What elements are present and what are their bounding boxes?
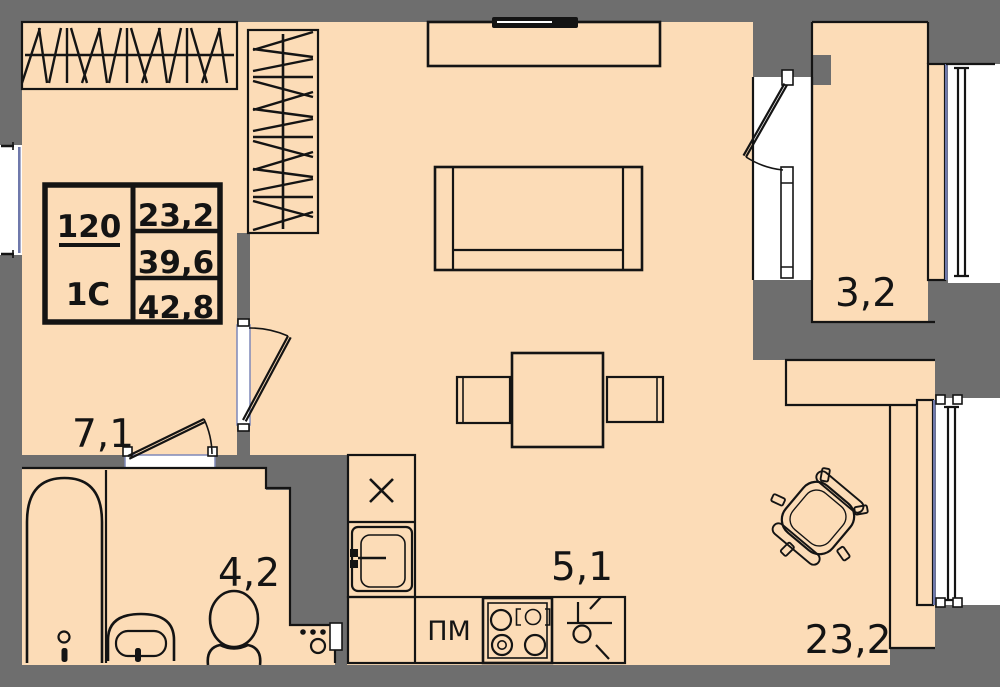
apartment-type: 1С (66, 277, 110, 313)
floor-plan: 120 1С 23,2 39,6 42,8 7,1 4,2 5,1 23,2 3… (0, 0, 1000, 687)
balcony-window (928, 64, 1000, 283)
washbasin-faucet-icon (135, 648, 141, 662)
hallway-window (0, 142, 22, 258)
apartment-number: 120 (57, 209, 122, 245)
kitchen-area-label: 5,1 (551, 545, 613, 590)
bathtub-faucet-icon (62, 648, 68, 662)
legend-area-living: 23,2 (138, 198, 215, 234)
main-apartment-floor (22, 22, 785, 665)
floor-plan-screenshot: 120 1С 23,2 39,6 42,8 7,1 4,2 5,1 23,2 3… (0, 0, 1000, 687)
balcony-partition (744, 70, 813, 280)
balcony-area-label: 3,2 (835, 271, 897, 316)
utility-hatch (330, 623, 342, 650)
dishwasher-label: ПМ (427, 616, 471, 647)
bathroom-area-label: 4,2 (218, 551, 280, 596)
living-room-area-label: 23,2 (805, 618, 892, 663)
legend-area-total: 42,8 (138, 290, 215, 326)
living-room-window (917, 395, 1000, 607)
hallway-area-label: 7,1 (72, 412, 134, 457)
legend-area-apartment: 39,6 (138, 245, 215, 281)
